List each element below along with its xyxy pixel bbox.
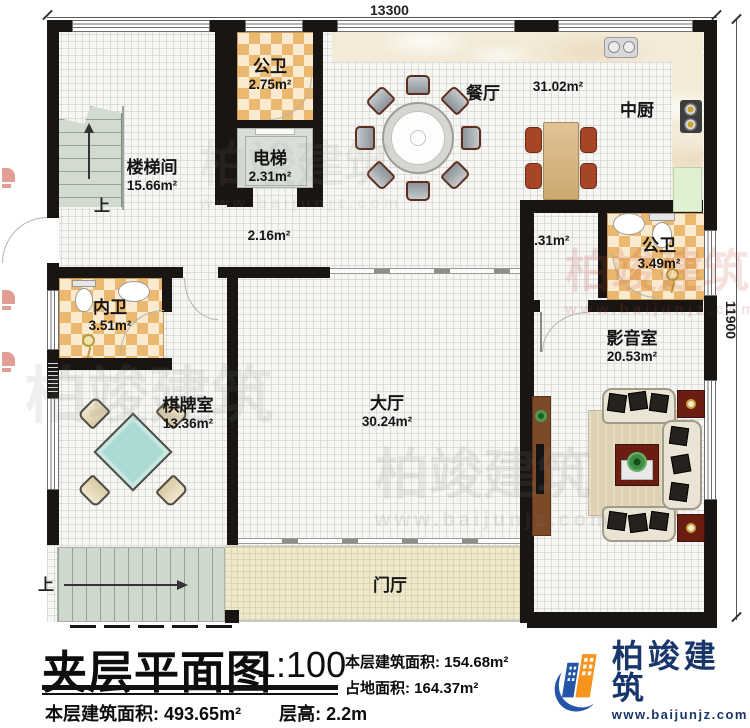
fridge	[673, 167, 702, 212]
room-label-hall: 大厅30.24m²	[332, 394, 442, 430]
land-area-row: 占地面积: 164.37m²	[345, 676, 508, 702]
table-lamp	[686, 399, 696, 409]
door-arc	[2, 217, 47, 263]
company-logo: 柏竣建筑 www.baijunjz.com	[550, 640, 750, 722]
mezzanine-railing-top	[330, 268, 520, 274]
baijun-logo-icon	[550, 650, 606, 712]
corridor-area-right: 2.31m²	[493, 233, 603, 249]
plan-scale: 1:100	[256, 644, 346, 686]
dining-chair	[355, 126, 375, 150]
window	[704, 380, 717, 500]
elevator-door-slot	[255, 128, 295, 135]
dimension-right: 11900	[723, 301, 739, 339]
plant	[535, 410, 547, 422]
dining-chair	[406, 75, 430, 95]
sofa-cushion	[669, 482, 689, 502]
foyer-edge-line	[225, 620, 527, 622]
watermark-fragment	[2, 352, 16, 374]
stairs-arrow-line	[64, 584, 178, 586]
logo-text: 柏竣建筑	[612, 640, 750, 704]
kitchen-sink-bowl	[623, 41, 635, 53]
mezzanine-railing-bottom	[238, 538, 520, 544]
sink	[613, 213, 645, 235]
elevator-column-right	[297, 188, 313, 207]
title-underline-thick	[42, 685, 338, 690]
foyer-corner-column	[225, 610, 239, 623]
title-block: 夹层平面图 1:100 本层建筑面积: 493.65m² 层高: 2.2m 本层…	[0, 628, 750, 728]
floor-area-row: 本层建筑面积: 154.68m²	[345, 650, 508, 676]
watermark-fragment	[2, 290, 16, 312]
sofa-cushion	[628, 391, 648, 411]
dining-chair	[461, 126, 481, 150]
room-label-foyer: 门厅	[335, 576, 445, 596]
radiator-grille	[48, 360, 58, 392]
room-label-stairwell: 楼梯间15.66m²	[97, 158, 207, 194]
dining-table-center	[410, 130, 426, 146]
room-label-kitchen: 中厨	[582, 101, 692, 121]
room-label-bath-top: 公卫2.75m²	[215, 57, 325, 93]
door-leaf	[540, 312, 542, 352]
kitchen-table	[543, 122, 579, 200]
plan-title: 夹层平面图	[42, 636, 272, 701]
corridor-area-left: 2.16m²	[214, 228, 324, 244]
floor-height-value: 2.2m	[326, 704, 367, 724]
kitchen-chair	[525, 127, 542, 153]
window	[245, 20, 303, 32]
sofa-cushion	[669, 426, 689, 446]
sofa-cushion	[607, 511, 627, 531]
wall-media-top	[588, 300, 703, 312]
sofa-cushion	[671, 454, 692, 475]
stats-bottom: 本层建筑面积: 493.65m² 层高: 2.2m	[45, 700, 367, 726]
sofa-cushion	[628, 513, 648, 533]
kitchen-chair	[525, 163, 542, 189]
room-label-elevator: 电梯2.31m²	[215, 149, 325, 185]
logo-website: www.baijunjz.com	[612, 707, 750, 722]
toilet	[72, 280, 96, 287]
sofa-cushion	[649, 393, 669, 413]
tv	[536, 444, 544, 494]
plant	[627, 452, 647, 472]
window	[47, 398, 59, 490]
wall-right	[704, 20, 717, 628]
stairs-arrow-line	[88, 133, 90, 179]
stairs-arrow-head	[177, 580, 188, 590]
floor-plan: 柏竣建筑 柏竣建筑 www.baijunjz.com 柏竣建筑 www.baij…	[0, 0, 750, 630]
wall-media-top-stub	[534, 300, 540, 312]
kitchen-counter-top	[332, 32, 703, 62]
door-opening	[47, 218, 59, 263]
kitchen-chair	[580, 163, 597, 189]
room-label-media: 影音室20.53m²	[577, 329, 687, 365]
sofa-cushion	[649, 511, 669, 531]
dimension-tick	[711, 10, 722, 21]
title-underline-thin	[42, 693, 338, 695]
window	[72, 20, 210, 32]
wall-media-bottom	[527, 612, 717, 628]
room-label-bath-inner: 内卫3.51m²	[55, 298, 165, 334]
kitchen-sink-bowl	[608, 41, 620, 53]
wall-bath-top-bottom	[227, 120, 323, 128]
elevator-column-left	[237, 188, 253, 207]
floor-height-label: 层高:	[279, 704, 321, 724]
window	[337, 20, 515, 32]
dimension-top: 13300	[370, 2, 409, 18]
total-area-value: 493.65m²	[164, 704, 241, 724]
room-label-bath-right: 公卫3.49m²	[604, 236, 714, 272]
toilet	[649, 213, 675, 221]
room-area-dining: 31.02m²	[510, 79, 606, 95]
table-lamp	[686, 523, 696, 533]
stairs-up-label-top: 上	[94, 192, 110, 216]
window	[558, 20, 693, 32]
watermark-fragment	[2, 168, 16, 190]
stairs-arrow-head	[84, 123, 94, 133]
room-label-chess: 棋牌室13.36m²	[133, 396, 243, 432]
stairs-up-label-bottom: 上	[38, 571, 54, 595]
wall-bath-inner-bottom	[47, 358, 172, 370]
dimension-tick	[42, 10, 53, 21]
total-area-label: 本层建筑面积:	[45, 704, 159, 724]
kitchen-chair	[580, 127, 597, 153]
shower-head	[82, 334, 95, 347]
sofa-cushion	[607, 393, 627, 413]
dining-chair	[406, 181, 430, 201]
stats-right: 本层建筑面积: 154.68m² 占地面积: 164.37m²	[345, 650, 508, 701]
